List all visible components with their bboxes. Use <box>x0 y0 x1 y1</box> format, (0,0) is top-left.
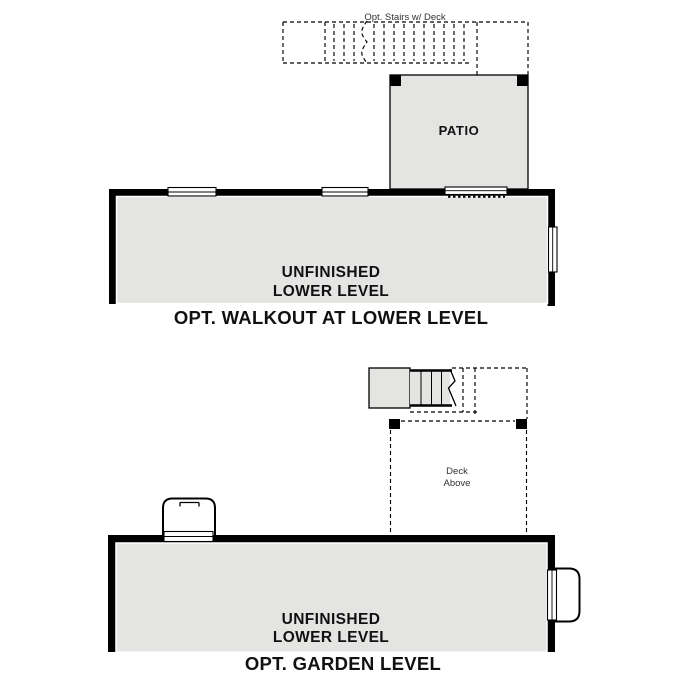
walkout-building: UNFINISHED LOWER LEVEL <box>109 187 557 306</box>
floorplan-page: Opt. Stairs w/ Deck PATIO <box>0 0 687 687</box>
stairs-deck-label: Opt. Stairs w/ Deck <box>364 12 446 23</box>
window-icon <box>322 188 368 197</box>
post-icon <box>389 419 400 429</box>
post-icon <box>390 75 401 86</box>
deck-above: Deck Above <box>389 419 527 534</box>
window-well-icon <box>163 499 215 536</box>
window-icon <box>164 532 213 542</box>
post-icon <box>517 75 528 86</box>
room-label-line1: UNFINISHED <box>282 611 381 628</box>
room-label-line1: UNFINISHED <box>282 264 381 281</box>
room-label-line2: LOWER LEVEL <box>273 283 389 300</box>
floorplan-canvas: Opt. Stairs w/ Deck PATIO <box>0 0 687 687</box>
deck-label-line2: Above <box>444 478 471 489</box>
post-icon <box>516 419 527 429</box>
stair-landing <box>369 368 410 408</box>
garden-plan: Deck Above <box>108 368 580 674</box>
deck-label-line1: Deck <box>446 466 468 477</box>
window-icon <box>168 188 216 197</box>
garden-caption: OPT. GARDEN LEVEL <box>245 653 441 674</box>
window-well-icon <box>555 569 580 622</box>
walkout-plan: Opt. Stairs w/ Deck PATIO <box>109 12 557 328</box>
stair-run <box>410 370 450 406</box>
patio: PATIO <box>390 75 528 189</box>
walkout-caption: OPT. WALKOUT AT LOWER LEVEL <box>174 307 488 328</box>
window-icon <box>549 227 558 272</box>
left-wall <box>108 535 116 652</box>
left-wall <box>109 189 117 304</box>
stair-break-line <box>362 21 367 63</box>
patio-label: PATIO <box>439 123 480 138</box>
stairs <box>369 368 456 408</box>
room-label-line2: LOWER LEVEL <box>273 629 389 646</box>
garden-building: UNFINISHED LOWER LEVEL <box>108 532 580 653</box>
opt-stairs-deck-outline <box>283 21 528 77</box>
window-icon <box>548 570 557 620</box>
